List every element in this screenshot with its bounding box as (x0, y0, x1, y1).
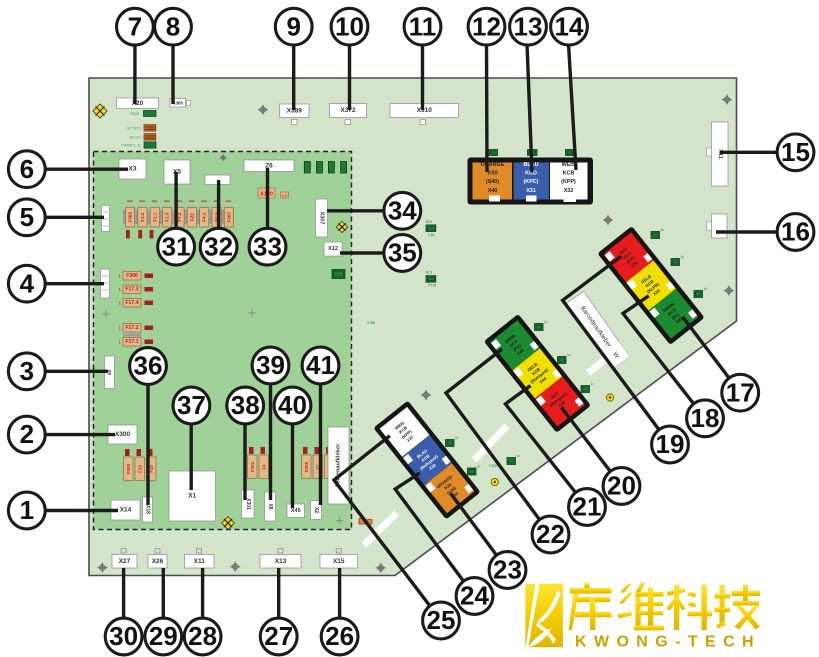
svg-text:XT.05: XT.05 (428, 284, 436, 288)
svg-text:X3: X3 (129, 166, 137, 173)
svg-text:(S40): (S40) (486, 179, 499, 185)
svg-text:6: 6 (20, 154, 34, 184)
svg-text:1: 1 (20, 495, 34, 525)
svg-text:38: 38 (231, 390, 260, 420)
svg-text:X26: X26 (152, 558, 164, 565)
svg-text:31: 31 (162, 231, 191, 261)
svg-text:1x: 1x (517, 454, 521, 458)
svg-text:100: 100 (282, 194, 288, 198)
svg-text:15: 15 (781, 137, 810, 167)
svg-text:37: 37 (177, 390, 206, 420)
svg-text:1x: 1x (567, 353, 571, 357)
svg-text:X27: X27 (119, 558, 131, 565)
svg-text:X11: X11 (194, 558, 206, 565)
svg-text:39: 39 (256, 350, 285, 380)
svg-text:1x: 1x (544, 320, 548, 324)
svg-text:F4.1: F4.1 (202, 212, 207, 222)
svg-text:X8: X8 (267, 503, 273, 509)
svg-text:40: 40 (278, 390, 307, 420)
svg-text:14: 14 (555, 11, 584, 41)
svg-text:5: 5 (20, 202, 34, 232)
svg-text:20: 20 (607, 471, 636, 501)
svg-text:X13: X13 (275, 558, 287, 565)
svg-text:1x: 1x (477, 465, 481, 469)
svg-text:1x: 1x (455, 436, 459, 440)
svg-text:3: 3 (20, 356, 34, 386)
svg-text:RL5: RL5 (426, 271, 432, 275)
svg-text:WEIS: WEIS (562, 162, 576, 168)
svg-text:X18: X18 (145, 505, 151, 514)
svg-text:26: 26 (325, 621, 354, 651)
svg-text:1x: 1x (681, 255, 685, 259)
svg-text:28: 28 (188, 621, 217, 651)
svg-text:SP 512V: SP 512V (127, 126, 142, 130)
svg-text:X1: X1 (188, 493, 196, 500)
svg-text:36: 36 (134, 351, 163, 381)
svg-text:X40: X40 (488, 188, 498, 194)
svg-text:25: 25 (427, 605, 456, 635)
svg-text:41: 41 (306, 350, 335, 380)
svg-text:16: 16 (781, 217, 810, 247)
svg-text:X31: X31 (526, 188, 536, 194)
svg-text:SP rsrv: SP rsrv (129, 135, 141, 139)
svg-text:F17.3: F17.3 (125, 286, 138, 292)
svg-text:X12: X12 (328, 246, 338, 252)
svg-text:K50: K50 (488, 171, 498, 177)
svg-text:1x: 1x (704, 287, 708, 291)
svg-text:27: 27 (264, 621, 293, 651)
svg-text:X32: X32 (564, 188, 574, 194)
svg-text:(KPC): (KPC) (524, 179, 539, 185)
svg-text:PWRB 5, 3c: PWRB 5, 3c (121, 143, 141, 147)
svg-text:F307: F307 (226, 212, 231, 223)
svg-text:34: 34 (388, 195, 417, 225)
svg-text:F306: F306 (126, 273, 138, 279)
svg-text:35: 35 (388, 238, 417, 268)
svg-text:X300: X300 (115, 431, 131, 438)
svg-text:F17.4: F17.4 (125, 300, 138, 306)
svg-text:1.5A: 1.5A (428, 233, 435, 237)
svg-text:ORANGE: ORANGE (481, 162, 505, 168)
svg-text:F17.1: F17.1 (125, 339, 138, 345)
svg-text:F302: F302 (128, 212, 133, 223)
svg-text:7: 7 (128, 11, 142, 41)
svg-text:F1.2: F1.2 (140, 212, 145, 222)
svg-text:1x: 1x (661, 228, 665, 232)
svg-text:X310: X310 (417, 107, 433, 114)
svg-text:12: 12 (472, 11, 501, 41)
svg-text:F17.2: F17.2 (125, 325, 138, 331)
svg-text:23: 23 (493, 555, 522, 585)
svg-text:19: 19 (656, 429, 685, 459)
svg-text:F301: F301 (250, 461, 255, 472)
svg-text:13: 13 (514, 11, 543, 41)
svg-text:21: 21 (573, 492, 602, 522)
svg-text:30: 30 (109, 621, 138, 651)
svg-text:KWONG-TECH: KWONG-TECH (575, 634, 761, 651)
svg-text:F14: F14 (137, 465, 142, 473)
svg-text:(KPP): (KPP) (561, 179, 576, 185)
svg-text:X15: X15 (333, 558, 345, 565)
svg-text:2: 2 (20, 419, 34, 449)
svg-text:1x: 1x (591, 382, 595, 386)
svg-text:11: 11 (409, 11, 437, 41)
svg-text:29: 29 (149, 621, 178, 651)
svg-text:KCB: KCB (563, 171, 575, 177)
svg-text:4: 4 (20, 268, 35, 298)
svg-text:F305: F305 (304, 461, 309, 472)
svg-text:RL6: RL6 (426, 220, 432, 224)
svg-text:X2: X2 (313, 507, 319, 513)
svg-text:8: 8 (166, 11, 180, 41)
svg-text:32: 32 (204, 231, 233, 261)
svg-text:X307: X307 (319, 212, 325, 225)
svg-text:F22: F22 (189, 213, 194, 221)
svg-text:24: 24 (460, 581, 489, 611)
svg-text:X14: X14 (120, 507, 132, 514)
svg-text:33: 33 (253, 231, 282, 261)
svg-text:F6: F6 (261, 464, 266, 470)
svg-text:XT06: XT06 (367, 321, 375, 325)
svg-text:F300: F300 (126, 463, 131, 474)
svg-text:18: 18 (691, 403, 720, 433)
svg-text:X45: X45 (291, 508, 301, 514)
svg-text:10: 10 (335, 11, 364, 41)
svg-text:9: 9 (286, 11, 300, 41)
svg-text:F1.1: F1.1 (152, 212, 157, 222)
svg-text:22: 22 (536, 519, 565, 549)
svg-text:17: 17 (726, 377, 755, 407)
svg-text:PWM: PWM (130, 112, 139, 116)
svg-text:F1.5: F1.5 (165, 212, 170, 222)
